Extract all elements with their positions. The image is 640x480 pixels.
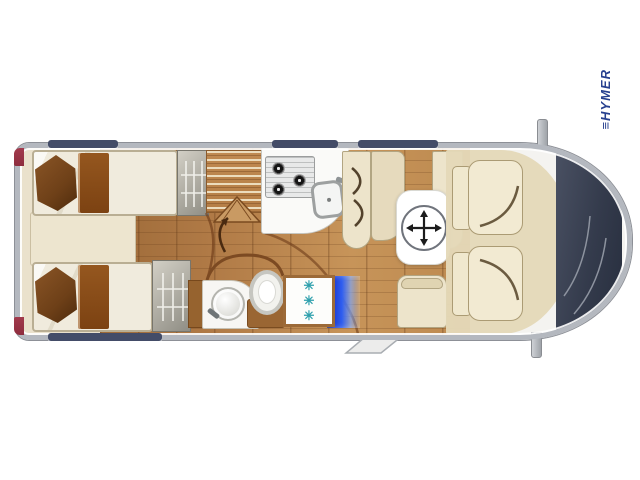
drain xyxy=(327,198,331,202)
shower-tray: ✳ ✳ ✳ xyxy=(283,275,335,327)
kitchen-sink xyxy=(310,179,346,220)
cab-seat-driver xyxy=(452,160,524,236)
window-bottom-rear xyxy=(48,333,162,341)
brand-logo: ≡HYMER xyxy=(591,36,619,162)
seat-contours xyxy=(345,162,375,234)
armrest-contour xyxy=(472,250,524,320)
window-top-rear xyxy=(48,140,118,148)
cab-seat-passenger xyxy=(452,246,524,323)
stove xyxy=(265,156,315,198)
toilet-bowl xyxy=(258,280,276,304)
vehicle-interior: ✳ ✳ ✳ xyxy=(18,146,629,337)
tail-light-bottom xyxy=(14,317,24,335)
dinette-table xyxy=(396,190,450,265)
window-top-dinette xyxy=(358,140,438,148)
windshield xyxy=(556,146,622,337)
move-four-arrows-icon xyxy=(406,210,442,246)
snowflake-icon: ✳ xyxy=(304,309,315,323)
burner-icon xyxy=(272,183,285,196)
floorplan-image: ✳ ✳ ✳ xyxy=(0,0,640,480)
bathroom-cabinet xyxy=(188,280,203,328)
burner-icon xyxy=(272,162,285,175)
armrest-contour xyxy=(472,164,524,234)
tail-light-top xyxy=(14,148,24,166)
seat-backrest xyxy=(401,278,443,289)
wiper-icon xyxy=(556,146,622,337)
burner-icon xyxy=(293,174,306,187)
window-top-kitchen xyxy=(272,140,338,148)
toilet xyxy=(249,270,285,315)
dinette-side-seat xyxy=(397,275,447,328)
side-mirror-top xyxy=(537,119,548,149)
snowflake-icon: ✳ xyxy=(304,294,315,308)
hymer-logo-text: ≡HYMER xyxy=(598,69,613,130)
snowflake-icon: ✳ xyxy=(304,279,315,293)
